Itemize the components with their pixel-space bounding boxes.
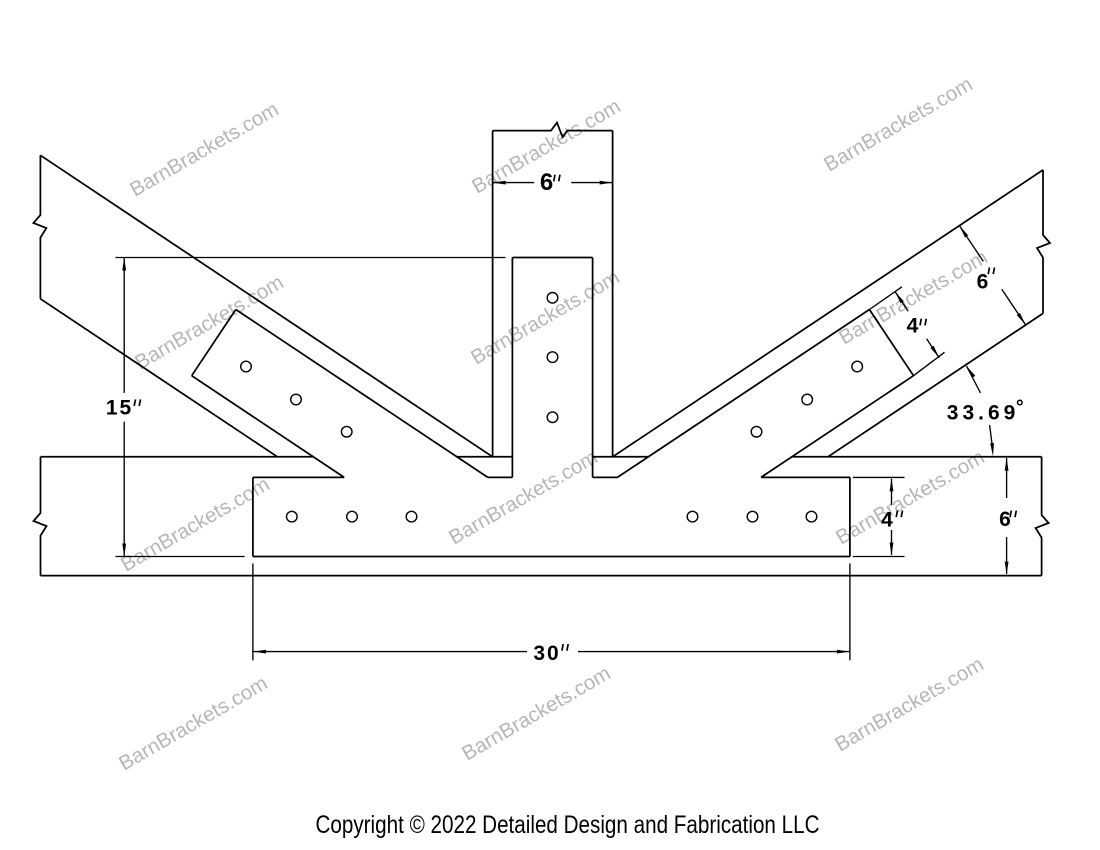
svg-text:33.69: 33.69 [947,402,1020,425]
svg-text:30: 30 [533,642,560,665]
svg-text:4: 4 [881,509,893,532]
svg-text:15: 15 [106,397,133,420]
svg-text:6: 6 [540,169,553,196]
svg-text:Copyright © 2022 Detailed Desi: Copyright © 2022 Detailed Design and Fab… [316,811,820,839]
svg-text:4: 4 [907,315,919,338]
svg-text:6: 6 [977,271,989,294]
svg-text:6: 6 [999,508,1011,531]
